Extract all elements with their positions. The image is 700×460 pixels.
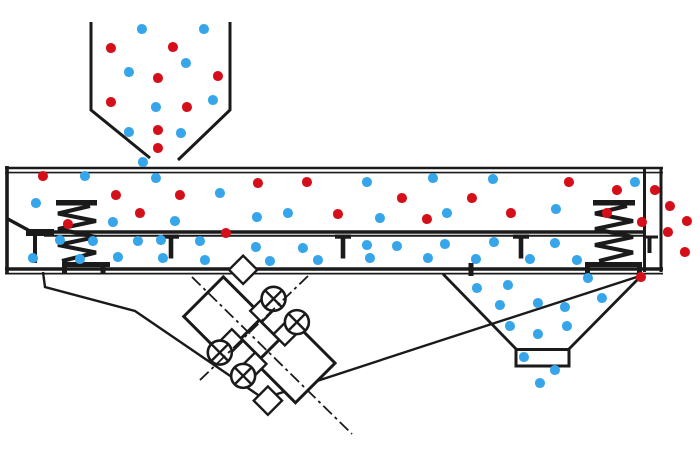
mesh-hanger-stem — [341, 235, 346, 259]
screen-deck-frame — [5, 166, 663, 274]
fines-hopper-left-wall — [443, 274, 518, 351]
feed-deflector-plate — [6, 218, 29, 231]
diagram-linework — [0, 0, 700, 460]
fines-collection-hopper — [443, 263, 643, 366]
spring-foot — [585, 264, 590, 274]
spring-foot — [637, 264, 642, 274]
mesh-support-bracket-left — [33, 236, 37, 263]
vibration-motor — [175, 254, 345, 424]
feed-hopper-left-wall — [91, 22, 150, 158]
screen-mesh — [6, 218, 658, 263]
mesh-hanger-stem — [169, 235, 174, 259]
feed-hopper-right-wall — [178, 22, 230, 160]
mesh-hanger-stem — [519, 235, 524, 259]
fines-outlet — [516, 350, 569, 367]
spring-foot — [101, 264, 106, 274]
mesh-hanger — [163, 235, 179, 259]
motor-mounting-tab-top — [229, 256, 257, 284]
mesh-end-bar-left — [26, 229, 54, 236]
mesh-support-bracket-right — [648, 237, 652, 253]
vibrating-screen-diagram — [0, 0, 700, 460]
mesh-hangers — [163, 235, 529, 259]
spring-foot — [62, 264, 67, 274]
spring-top-plate — [593, 200, 635, 206]
spring-top-plate — [56, 200, 97, 206]
feed-hopper — [91, 22, 230, 160]
mesh-hanger — [335, 235, 351, 259]
mesh-hanger — [513, 235, 529, 259]
funnel-mount-tick — [469, 263, 474, 276]
spring-bottom-plate — [585, 262, 642, 267]
fines-hopper-right-wall — [567, 274, 643, 351]
motor-mounting-tab-bottom — [254, 386, 282, 414]
